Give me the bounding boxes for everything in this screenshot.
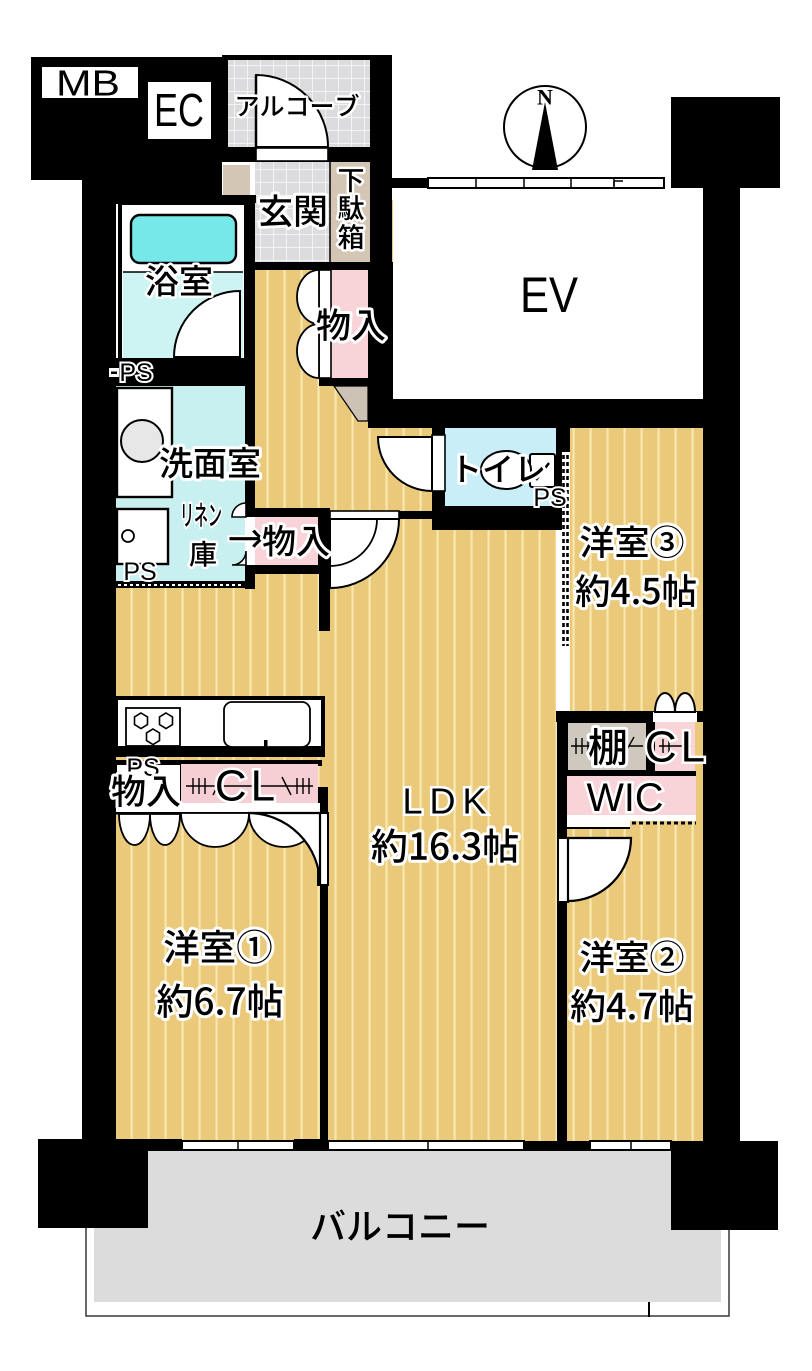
svg-text:PS: PS	[533, 484, 566, 512]
svg-text:PS: PS	[119, 359, 152, 387]
svg-text:CL: CL	[215, 762, 279, 811]
svg-text:LDK: LDK	[402, 781, 493, 822]
svg-text:MB: MB	[56, 63, 120, 104]
svg-text:EV: EV	[520, 267, 579, 323]
svg-text:EC: EC	[154, 84, 204, 136]
svg-text:N: N	[537, 85, 553, 110]
svg-text:CL: CL	[645, 723, 709, 772]
svg-text:WIC: WIC	[587, 776, 664, 820]
svg-text:PS: PS	[123, 558, 156, 586]
